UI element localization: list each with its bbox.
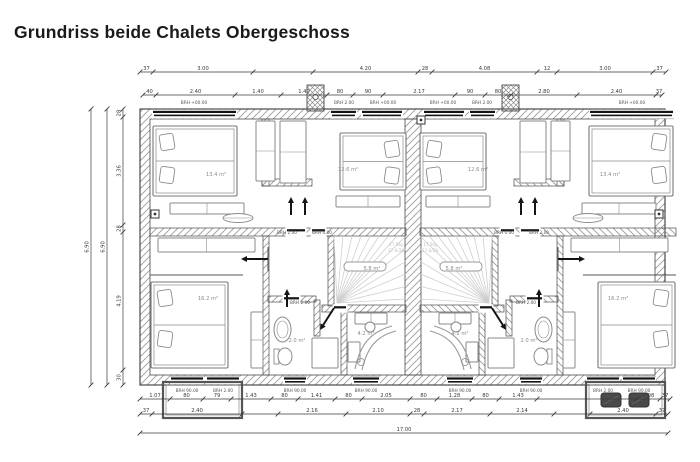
pillow xyxy=(159,166,175,184)
dimension-row: 17.00 xyxy=(138,427,671,435)
pillow xyxy=(384,167,400,185)
dim-label: 80 xyxy=(183,393,190,399)
dim-label: 17.00 xyxy=(397,427,412,433)
dim-label: 4.20 xyxy=(360,66,372,72)
dim-label: 37 xyxy=(143,408,150,414)
window-bar xyxy=(171,377,203,379)
window-bar xyxy=(285,381,305,383)
window-bar xyxy=(154,115,235,117)
floor-plan-svg: BRH +00.00BRH +00.00BRH 2.00BRH 2.00BRH … xyxy=(0,0,700,462)
stair-count-label: 17,6/28 xyxy=(388,248,404,253)
interior-wall xyxy=(492,236,498,306)
window-sill-label: BRH +00.00 xyxy=(430,100,457,106)
document-page: Grundriss beide Chalets Obergeschoss BRH… xyxy=(0,0,700,462)
dim-label: 90 xyxy=(365,89,372,95)
door-bar xyxy=(334,306,346,308)
window-bar xyxy=(354,381,378,383)
dim-label: 1.28 xyxy=(449,393,461,399)
dim-label: 80 xyxy=(482,393,489,399)
window-sill-label: BRH 2.00 xyxy=(516,300,536,306)
dim-label: 2.40 xyxy=(611,89,623,95)
room-area-label: 16.2 m² xyxy=(608,296,628,302)
vent-dot xyxy=(658,213,661,216)
window-sill-label: BRH 90.00 xyxy=(355,388,378,394)
furniture xyxy=(312,338,338,368)
interior-wall xyxy=(328,236,334,306)
window-opening xyxy=(352,376,380,384)
toilet xyxy=(278,348,292,365)
window-bar xyxy=(362,111,402,113)
pillow xyxy=(157,289,173,307)
bed xyxy=(153,126,237,196)
window-opening xyxy=(446,376,474,384)
window-bar xyxy=(590,111,673,113)
bed xyxy=(340,133,406,190)
dimension-row: 373.004.20284.08123.0037 xyxy=(138,66,669,74)
dim-label: 12 xyxy=(544,66,551,72)
dim-label: 79 xyxy=(214,393,221,399)
pillow xyxy=(157,330,173,348)
window-sill-label: BRH 2.00 xyxy=(334,100,354,106)
window-bar xyxy=(353,377,379,379)
pillow xyxy=(651,166,667,184)
window-bar xyxy=(448,381,472,383)
room-area-label: 4.2 m² xyxy=(357,331,374,337)
window-bar xyxy=(363,115,401,117)
room-area-label: 2.0 m² xyxy=(288,338,305,344)
bed xyxy=(598,282,675,368)
window-bar xyxy=(623,377,655,379)
room-area-label: 12.6 m² xyxy=(468,167,488,173)
window-sill-label: BRH 0.00 xyxy=(312,230,332,236)
dim-label: 40 xyxy=(146,89,153,95)
dim-label: 1.07 xyxy=(149,393,161,399)
bed xyxy=(589,126,673,196)
interior-wall xyxy=(341,312,347,375)
dim-label: 4.08 xyxy=(479,66,491,72)
dim-label: 2.10 xyxy=(372,408,384,414)
window-sill-label: BRH 0.00 xyxy=(494,230,514,236)
room-area-label: 16.2 m² xyxy=(198,296,218,302)
party-wall xyxy=(405,119,421,375)
dim-label: 80 xyxy=(345,393,352,399)
pillow xyxy=(653,289,669,307)
dim-label: 2.14 xyxy=(516,408,528,414)
window-bar xyxy=(521,381,541,383)
dim-label: 80 xyxy=(420,393,427,399)
dim-label: 2.40 xyxy=(191,408,203,414)
window-opening xyxy=(283,376,307,384)
pillow xyxy=(159,133,175,151)
interior-wall xyxy=(314,300,320,336)
stair-count-label: 17,6/28 xyxy=(422,248,438,253)
window-bar xyxy=(591,115,672,117)
dim-label: 37 xyxy=(143,66,150,72)
dim-label: 28 xyxy=(117,225,123,232)
window-bar xyxy=(153,111,236,113)
room-area-label: 5.8 m² xyxy=(363,266,380,272)
stair-count-label: 17 Stg xyxy=(423,242,437,247)
window-bar xyxy=(447,377,473,379)
window-bar xyxy=(587,377,619,379)
window-bar xyxy=(520,377,542,379)
bed xyxy=(420,133,486,190)
dim-label: 2.80 xyxy=(538,89,550,95)
dimension-row: 1.0780791.43801.41802.05801.28801.431.08… xyxy=(138,393,673,401)
stair-count-label: 17 Stg xyxy=(389,242,403,247)
dim-label: 2.40 xyxy=(617,408,629,414)
dim-label: 2.05 xyxy=(380,393,392,399)
dim-label: 1.43 xyxy=(245,393,257,399)
window-bar xyxy=(207,377,239,379)
dim-label: 1.40 xyxy=(252,89,264,95)
dim-label: 37 xyxy=(656,66,663,72)
dim-label: 90 xyxy=(467,89,474,95)
dim-label: 2.17 xyxy=(413,89,425,95)
pillow xyxy=(426,140,442,158)
room-area-label: 13.4 m² xyxy=(206,172,226,178)
dim-label: 1.41 xyxy=(311,393,323,399)
pillow xyxy=(384,140,400,158)
pillow xyxy=(653,330,669,348)
window-sill-label: BRH 2.00 xyxy=(593,388,613,394)
floor-plan-drawing: BRH +00.00BRH +00.00BRH 2.00BRH 2.00BRH … xyxy=(0,0,700,462)
room-area-label: 2.0 m² xyxy=(520,338,537,344)
dim-label: 6.90 xyxy=(101,241,107,253)
window-sill-label: BRH +00.00 xyxy=(619,100,646,106)
door-bar xyxy=(480,306,492,308)
window-bar xyxy=(471,115,494,117)
dimension-column: 283.36284.1930 xyxy=(117,107,126,388)
window-bar xyxy=(425,115,463,117)
dim-label: 3.36 xyxy=(117,165,123,177)
room-area-label: 12.6 m² xyxy=(338,167,358,173)
window-bar xyxy=(332,115,355,117)
dimension-column: 6.90 xyxy=(85,107,94,388)
furniture xyxy=(348,342,360,362)
dim-label: 1.40 xyxy=(298,89,310,95)
dim-label: 1.43 xyxy=(512,393,524,399)
interior-wall xyxy=(506,300,512,336)
dim-label: 3.00 xyxy=(197,66,209,72)
dim-label: 80 xyxy=(495,89,502,95)
toilet xyxy=(534,348,548,365)
vent-dot xyxy=(420,119,423,122)
dim-label: 2.17 xyxy=(451,408,463,414)
window-bar xyxy=(424,111,464,113)
dim-label: 37 xyxy=(656,89,663,95)
window-sill-label: BRH +00.00 xyxy=(181,100,208,106)
window-bar xyxy=(331,111,356,113)
bed xyxy=(151,282,228,368)
dim-label: 30 xyxy=(117,374,123,381)
window-sill-label: BRH 2.00 xyxy=(277,230,297,236)
pillow xyxy=(426,167,442,185)
window-opening xyxy=(519,376,543,384)
pillow xyxy=(651,133,667,151)
dim-label: 37 xyxy=(659,408,666,414)
room-area-label: 4.2 m² xyxy=(451,331,468,337)
window-bar xyxy=(284,377,306,379)
dim-label: 2.40 xyxy=(190,89,202,95)
dim-label: 80 xyxy=(281,393,288,399)
interior-wall xyxy=(479,312,485,375)
dim-label: 28 xyxy=(414,408,421,414)
dim-label: 28 xyxy=(117,110,123,117)
dim-label: 37 xyxy=(662,393,669,399)
window-sill-label: BRH 2.00 xyxy=(529,230,549,236)
room-area-label: 5.8 m² xyxy=(445,266,462,272)
window-sill-label: BRH 2.00 xyxy=(290,300,310,306)
dim-label: 28 xyxy=(422,66,429,72)
dim-label: 6.90 xyxy=(85,241,91,253)
window-sill-label: BRH 2.00 xyxy=(472,100,492,106)
dim-label: 80 xyxy=(337,89,344,95)
dim-label: 4.19 xyxy=(117,295,123,307)
vent-dot xyxy=(154,213,157,216)
furniture xyxy=(466,342,478,362)
furniture xyxy=(488,338,514,368)
window-sill-label: BRH +00.00 xyxy=(370,100,397,106)
dim-label: 3.00 xyxy=(599,66,611,72)
room-area-label: 13.4 m² xyxy=(600,172,620,178)
window-bar xyxy=(470,111,495,113)
dim-label: 1.08 xyxy=(643,393,655,399)
dimension-row: 402.401.401.4080902.1790802.802.4037 xyxy=(141,89,665,97)
dimension-column: 6.90 xyxy=(101,107,110,388)
dim-label: 2.16 xyxy=(306,408,318,414)
